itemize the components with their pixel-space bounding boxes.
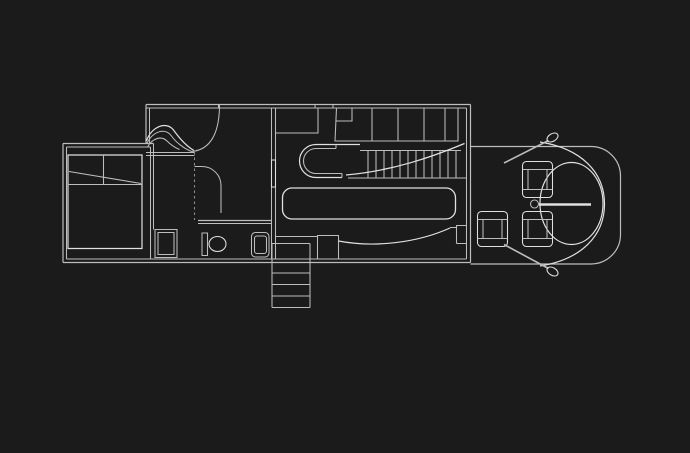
kitchen-counter-outline [335,108,458,141]
chair-top-outer [523,162,553,198]
oar-top-shaft [504,141,549,164]
oar-bottom-blade [545,265,559,278]
toilet-bowl [209,237,226,252]
wall-partition-door [272,160,276,187]
floor-plan-page [0,0,690,453]
toilet-tank [202,233,208,256]
stair-treads [368,151,456,179]
bench-curve [339,228,451,244]
chair-top-detail [523,170,553,190]
bed-outline [68,155,142,249]
stair-swoosh [346,144,465,176]
kitchen-corner-closet [276,108,319,133]
island-outer [300,145,361,178]
oar-bottom-shaft [504,245,549,269]
hall-curved-wall [195,167,222,214]
closet-inner [158,233,174,255]
bed-fold-diagonal [69,172,141,184]
chair-left-detail [478,220,508,239]
exterior-stair-sides [272,244,310,308]
island-inner [304,145,343,178]
floor-plan [0,0,690,453]
exterior-stair-treads [272,244,310,308]
oar-top-blade [545,131,559,144]
kitchen-counter-left-box [336,108,352,121]
wave-riser [192,105,220,152]
chair-bottom-outer [523,212,553,247]
chair-bottom-detail [523,220,553,239]
bench-end [450,226,467,244]
sundial-circle [531,200,539,208]
dining-table [283,188,456,219]
chair-left-outer [478,212,508,247]
sink-inner [255,236,267,254]
landing-step [318,236,339,260]
